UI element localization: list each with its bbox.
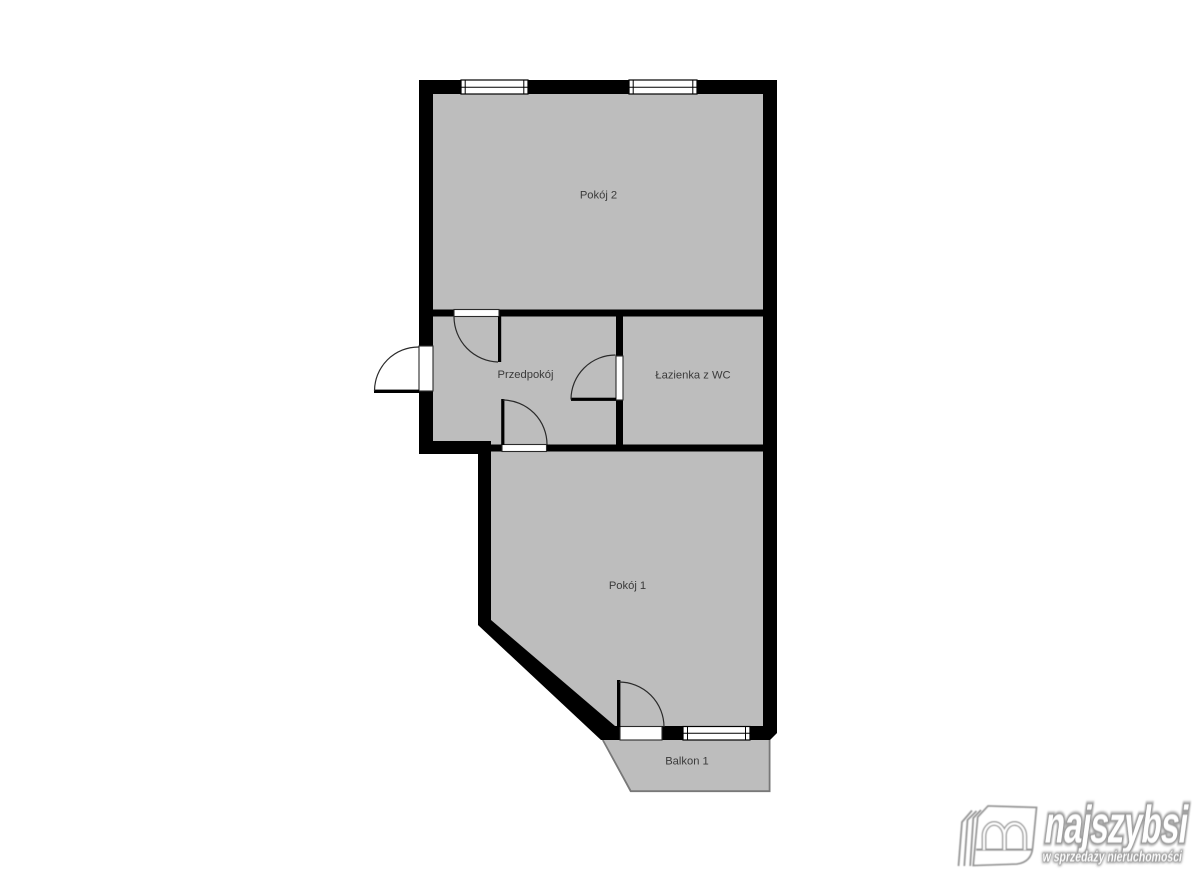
svg-text:Przedpokój: Przedpokój (498, 369, 554, 381)
svg-text:Łazienka z WC: Łazienka z WC (655, 369, 730, 381)
svg-text:w sprzedaży nieruchomości: w sprzedaży nieruchomości (1041, 848, 1184, 865)
svg-text:Balkon 1: Balkon 1 (665, 756, 709, 768)
svg-text:najszybsi: najszybsi (1041, 796, 1191, 854)
svg-text:Pokój 2: Pokój 2 (580, 190, 617, 202)
svg-text:Pokój 1: Pokój 1 (609, 580, 646, 592)
